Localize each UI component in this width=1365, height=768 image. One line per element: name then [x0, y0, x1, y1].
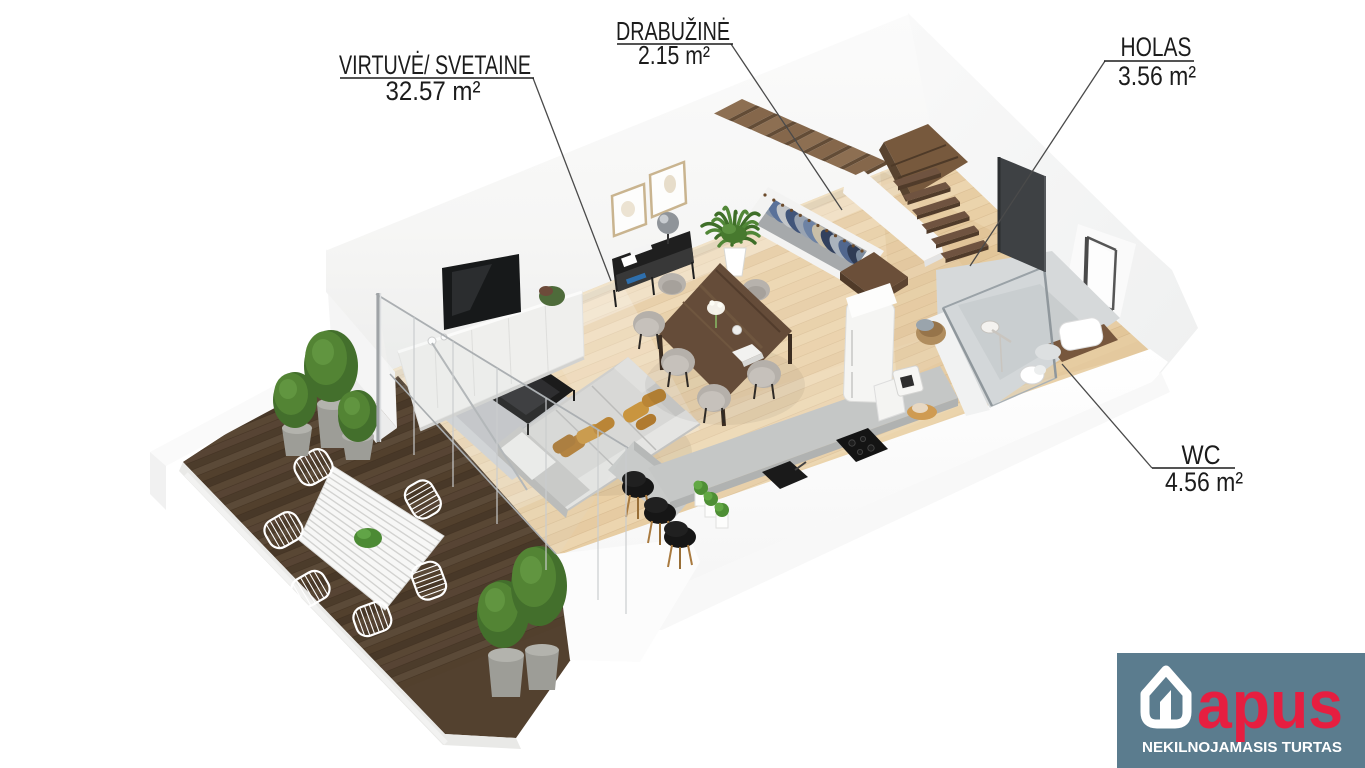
svg-text:2.15 m²: 2.15 m² [638, 40, 710, 70]
svg-text:apus: apus [1197, 667, 1343, 743]
svg-text:4.56 m²: 4.56 m² [1165, 467, 1243, 497]
svg-text:3.56 m²: 3.56 m² [1118, 61, 1196, 91]
svg-text:NEKILNOJAMASIS TURTAS: NEKILNOJAMASIS TURTAS [1142, 739, 1342, 756]
svg-text:32.57 m²: 32.57 m² [386, 76, 481, 106]
svg-text:HOLAS: HOLAS [1121, 32, 1192, 62]
svg-text:WC: WC [1182, 440, 1221, 470]
